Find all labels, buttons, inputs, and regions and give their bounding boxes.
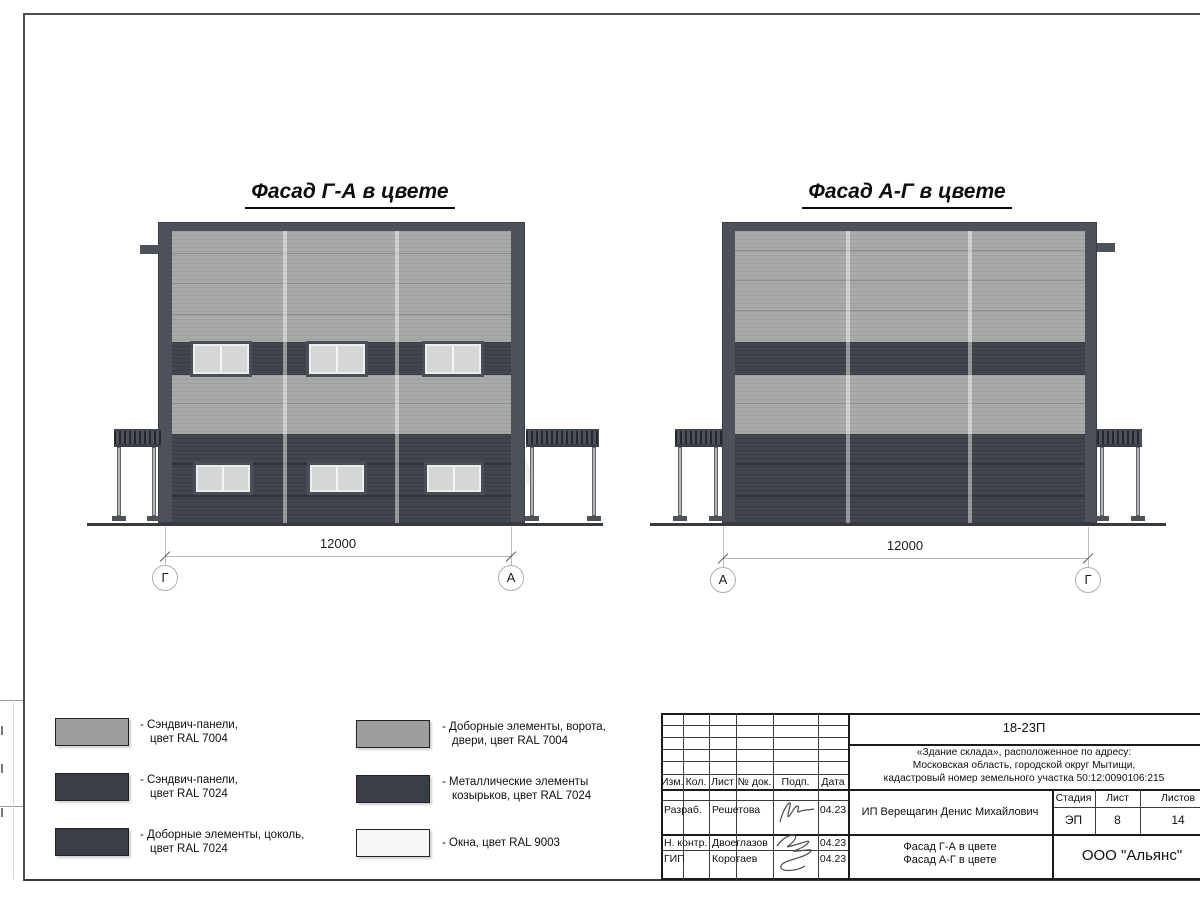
legend-swatch <box>55 718 129 746</box>
legend-label: - Окна, цвет RAL 9003 <box>442 836 672 850</box>
window <box>190 341 252 377</box>
canopy-post <box>678 447 682 516</box>
tb-sheets-value: 14 <box>1140 814 1200 827</box>
canopy-post-base <box>112 516 126 521</box>
titleblock-line <box>1052 807 1200 808</box>
canopy <box>1097 429 1142 447</box>
facade-band <box>735 342 1085 375</box>
canopy-post <box>152 447 156 516</box>
legend-label: - Доборные элементы, ворота,двери, цвет … <box>442 720 672 748</box>
canopy-post-base <box>1095 516 1109 521</box>
window-mullion <box>453 467 455 490</box>
dim-extension-line <box>165 527 166 567</box>
titleblock-line <box>661 749 848 750</box>
legend-swatch <box>356 829 430 857</box>
bay-divider <box>283 231 287 523</box>
tb-client: ИП Верещагин Денис Михайлович <box>850 806 1050 819</box>
canopy-post-base <box>709 516 723 521</box>
tb-name-developer: Решетова <box>712 804 772 817</box>
facade-band <box>735 375 1085 434</box>
facade-band <box>172 231 511 342</box>
legend-label-line1: - Сэндвич-панели, <box>140 719 238 731</box>
canopy-post <box>714 447 718 516</box>
tb-header-list: Лист <box>709 776 736 789</box>
titleblock-line <box>661 878 1200 880</box>
tb-role-gip: ГИП <box>664 853 710 866</box>
panel-seam <box>735 310 1085 311</box>
tb-project-line2: Московская область, городской округ Мыти… <box>850 759 1198 772</box>
panel-seam <box>735 250 1085 251</box>
tb-date-gip: 04.23 <box>818 853 848 866</box>
dim-extension-line <box>723 527 724 567</box>
titleblock-line <box>661 834 1200 836</box>
tb-header-podp: Подп. <box>773 776 818 789</box>
panel-seam <box>172 403 511 404</box>
axis-marker-Г: Г <box>1075 567 1101 593</box>
axis-marker-А: А <box>710 567 736 593</box>
canopy <box>114 429 161 447</box>
tb-sheets-header: Листов <box>1140 792 1200 805</box>
dimension-line <box>723 558 1088 559</box>
tb-name-ncontrol: Двоеглазов <box>712 837 776 850</box>
canopy-post <box>1136 447 1140 516</box>
legend-label-line1: - Металлические элементы <box>442 776 588 788</box>
tb-sheet-title-line1: Фасад Г-А в цвете <box>850 841 1050 854</box>
ground-line <box>87 523 603 526</box>
canopy-post-base <box>587 516 601 521</box>
tb-project-line3: кадастровый номер земельного участка 50:… <box>850 772 1198 785</box>
legend-label-line2: цвет RAL 7004 <box>140 732 370 746</box>
tb-header-kol: Кол. <box>683 776 709 789</box>
bay-divider <box>395 231 399 523</box>
window <box>307 462 367 495</box>
legend-label-line1: - Окна, цвет RAL 9003 <box>442 837 560 849</box>
tb-role-ncontrol: Н. контр. <box>664 837 712 850</box>
panel-seam <box>172 283 511 284</box>
legend-swatch <box>356 720 430 748</box>
signature-developer <box>774 796 818 828</box>
tb-project-name: «Здание склада», расположенное по адресу… <box>850 746 1198 785</box>
dim-extension-line <box>511 527 512 567</box>
panel-seam <box>172 253 511 254</box>
tb-name-gip: Коротаев <box>712 853 772 866</box>
tb-sheet-title-line2: Фасад А-Г в цвете <box>850 854 1050 867</box>
facade-band <box>735 231 1085 342</box>
signature-ncontrol-gip <box>769 830 821 876</box>
window-mullion <box>336 346 338 372</box>
tb-sheet-value: 8 <box>1095 814 1140 827</box>
canopy <box>526 429 599 447</box>
tb-sheet-header: Лист <box>1095 792 1140 805</box>
tb-stage-value: ЭП <box>1052 814 1095 827</box>
titleblock-line <box>661 761 848 762</box>
tb-header-data: Дата <box>818 776 848 789</box>
tb-doc-number: 18-23П <box>848 721 1200 734</box>
canopy-post <box>117 447 121 516</box>
window <box>193 462 253 495</box>
legend-label: - Сэндвич-панели,цвет RAL 7004 <box>140 718 370 746</box>
window <box>424 462 484 495</box>
tb-header-doc: № док. <box>736 776 773 789</box>
legend-label-line2: цвет RAL 7024 <box>140 787 370 801</box>
canopy-post-base <box>1131 516 1145 521</box>
titleblock-line <box>661 713 1200 715</box>
canopy-post-base <box>147 516 161 521</box>
axis-marker-Г: Г <box>152 565 178 591</box>
panel-seam-dark <box>735 495 1085 497</box>
bay-divider <box>846 231 850 523</box>
tb-header-izm: Изм. <box>661 776 683 789</box>
panel-seam <box>735 403 1085 404</box>
axis-marker-А: А <box>498 565 524 591</box>
dimension-text: 12000 <box>298 536 378 551</box>
legend-swatch <box>356 775 430 803</box>
titleblock-line <box>661 713 663 880</box>
facade-band <box>735 434 1085 523</box>
window <box>422 341 484 377</box>
titleblock-line <box>661 789 1200 791</box>
facade-band <box>172 375 511 434</box>
legend-swatch <box>55 773 129 801</box>
bay-divider <box>968 231 972 523</box>
tb-date-developer: 04.23 <box>818 804 848 817</box>
canopy <box>675 429 722 447</box>
panel-seam-dark <box>172 495 511 497</box>
tb-role-developer: Разраб. <box>664 804 710 817</box>
titleblock-line <box>661 800 848 801</box>
legend-label: - Доборные элементы, цоколь,цвет RAL 702… <box>140 828 370 856</box>
canopy-post <box>592 447 596 516</box>
window-mullion <box>336 467 338 490</box>
legend-label-line1: - Доборные элементы, ворота, <box>442 721 606 733</box>
titleblock-line <box>661 737 848 738</box>
panel-seam <box>735 280 1085 281</box>
canopy-post <box>1100 447 1104 516</box>
dimension-text: 12000 <box>865 538 945 553</box>
legend-swatch <box>55 828 129 856</box>
titleblock-line <box>661 725 848 726</box>
tb-stage-header: Стадия <box>1052 792 1095 805</box>
panel-seam-dark <box>735 463 1085 465</box>
legend-label-line2: козырьков, цвет RAL 7024 <box>442 789 672 803</box>
dimension-line <box>165 556 511 557</box>
window-mullion <box>220 346 222 372</box>
tb-date-ncontrol: 04.23 <box>818 837 848 850</box>
tb-project-line1: «Здание склада», расположенное по адресу… <box>850 746 1198 759</box>
legend-label: - Металлические элементыкозырьков, цвет … <box>442 775 672 803</box>
window-mullion <box>452 346 454 372</box>
window-mullion <box>222 467 224 490</box>
canopy-post-base <box>525 516 539 521</box>
tb-organization: ООО "Альянс" <box>1052 849 1200 862</box>
legend-label-line1: - Сэндвич-панели, <box>140 774 238 786</box>
titleblock-line <box>661 774 848 775</box>
canopy-post <box>530 447 534 516</box>
drainage-stub <box>140 245 160 254</box>
canopy-post-base <box>673 516 687 521</box>
drainage-stub <box>1097 243 1115 252</box>
legend-label-line2: двери, цвет RAL 7004 <box>442 734 672 748</box>
tb-sheet-title: Фасад Г-А в цвете Фасад А-Г в цвете <box>850 841 1050 867</box>
dim-extension-line <box>1088 527 1089 567</box>
window <box>306 341 368 377</box>
legend-label-line1: - Доборные элементы, цоколь, <box>140 829 304 841</box>
ground-line <box>650 523 1166 526</box>
legend-label-line2: цвет RAL 7024 <box>140 842 370 856</box>
panel-seam <box>172 314 511 315</box>
legend-label: - Сэндвич-панели,цвет RAL 7024 <box>140 773 370 801</box>
